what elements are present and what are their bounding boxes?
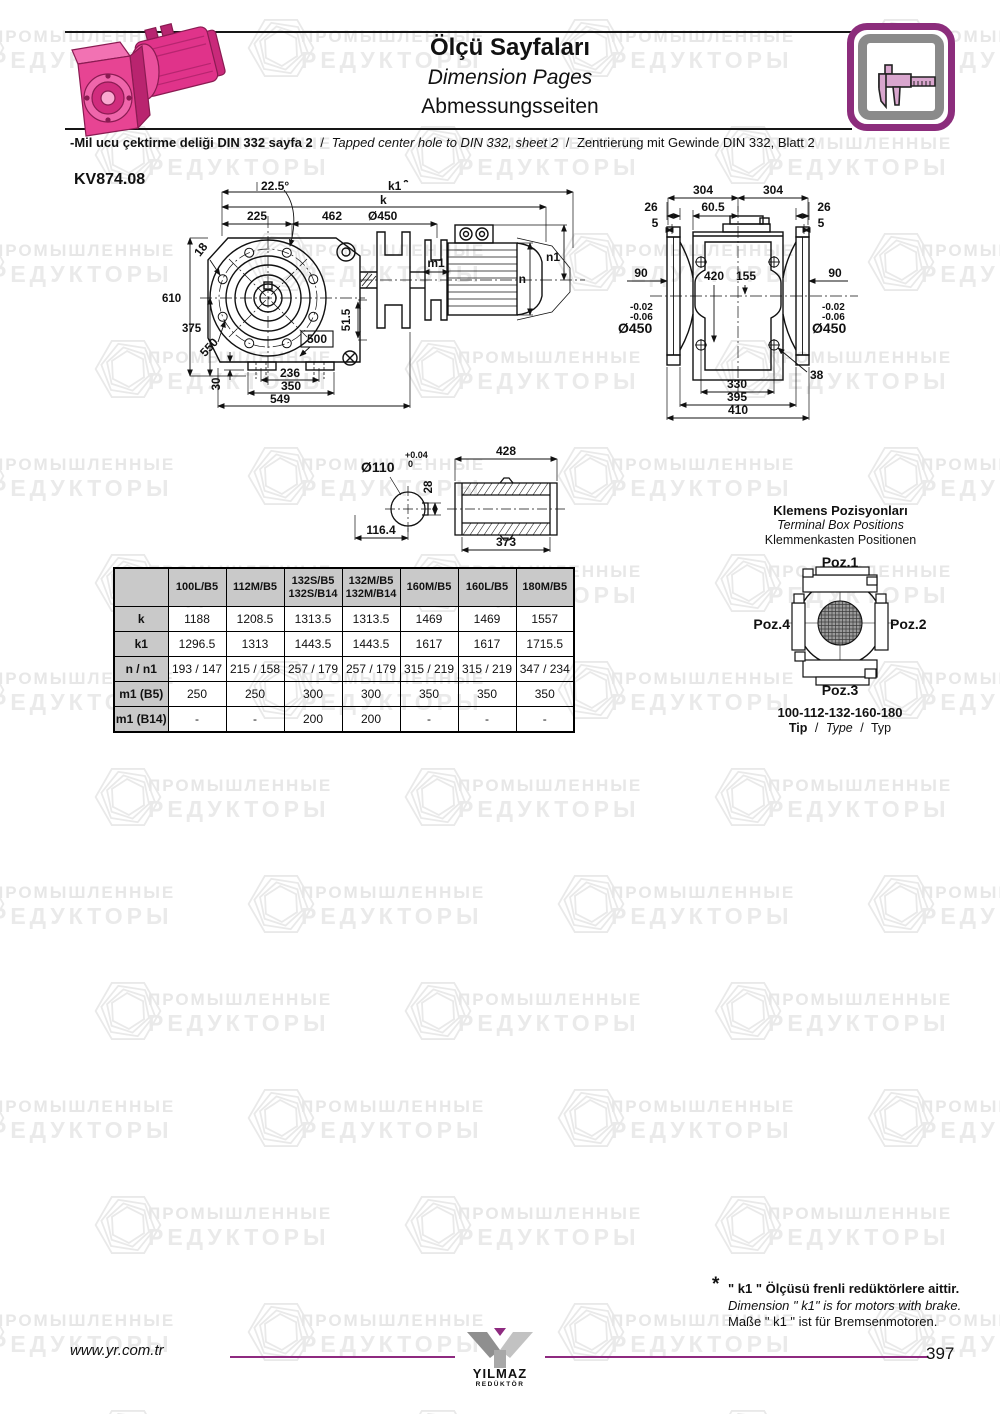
table-cell: 1313 [226, 632, 284, 657]
table-cell: 1469 [458, 607, 516, 632]
side-view-drawing: 304 304 26 60.5 26 5 5 90 90 420 155 -0.… [610, 180, 900, 425]
front-view-drawing: 22.5° k1 * k 225 462 Ø450 610 375 18 550… [160, 180, 640, 430]
logo-name: YILMAZ [473, 1366, 527, 1381]
watermark: ПРОМЫШЛЕННЫЕРЕДУКТОРЫ [0, 440, 175, 517]
hexagon-logo-watermark [92, 975, 164, 1052]
watermark: ПРОМЫШЛЕННЫЕРЕДУКТОРЫ [0, 868, 175, 945]
dim-label-375: 375 [182, 323, 202, 335]
terminal-box-diagram [765, 552, 915, 698]
hexagon-logo-watermark [865, 1082, 937, 1159]
caliper-icon-frame [858, 34, 944, 120]
dim-label-38: 38 [810, 368, 824, 382]
dim-label-18: 18 [191, 240, 210, 259]
dim-label-5-right: 5 [818, 216, 825, 230]
dim-label-90-left: 90 [634, 266, 648, 280]
table-cell: 1557 [516, 607, 574, 632]
table-cell: 300 [342, 682, 400, 707]
watermark: ПРОМЫШЛЕННЫЕРЕДУКТОРЫ [92, 1189, 332, 1266]
type-label-turkish: Tip [789, 721, 808, 735]
watermark: ПРОМЫШЛЕННЫЕРЕДУКТОРЫ [712, 761, 952, 838]
row-label: m1 (B5) [114, 682, 168, 707]
table-cell: 257 / 179 [342, 657, 400, 682]
table-cell: 1313.5 [284, 607, 342, 632]
din-note-german: Zentrierung mit Gewinde DIN 332, Blatt 2 [577, 135, 815, 150]
table-cell: 300 [284, 682, 342, 707]
column-header: 160L/B5 [458, 568, 516, 607]
note-separator: / [566, 135, 570, 150]
dim-label-549: 549 [270, 392, 290, 406]
dim-label-330: 330 [727, 377, 747, 391]
dim-label-angle: 22.5° [261, 180, 289, 193]
caliper-icon [847, 23, 955, 131]
model-number: KV874.08 [74, 171, 145, 189]
footnote-german: Maße " k1 " ist für Bremsenmotoren. [728, 1314, 961, 1331]
table-cell: 1469 [400, 607, 458, 632]
hexagon-logo-watermark [865, 868, 937, 945]
column-header: 132M/B5 132M/B14 [342, 568, 400, 607]
table-cell: 1617 [400, 632, 458, 657]
watermark: ПРОМЫШЛЕННЫЕРЕДУКТОРЫ [712, 975, 952, 1052]
table-cell: 215 / 158 [226, 657, 284, 682]
yilmaz-logo: YILMAZ REDÜKTÖR [455, 1328, 545, 1386]
hexagon-logo-watermark [555, 1082, 627, 1159]
table-cell: - [458, 707, 516, 732]
dim-label-28: 28 [423, 480, 435, 493]
table-cell: - [400, 707, 458, 732]
dim-label-90-right: 90 [828, 266, 842, 280]
hexagon-logo-watermark [245, 12, 317, 89]
table-row-m1-b5: m1 (B5) 250 250 300 300 350 350 350 [114, 682, 574, 707]
table-cell: - [226, 707, 284, 732]
watermark: ПРОМЫШЛЕННЫЕРЕДУКТОРЫ [0, 226, 175, 303]
footer-rule-right [545, 1356, 928, 1358]
hexagon-logo-watermark [402, 1403, 474, 1414]
table-row-k1: k1 1296.5 1313 1443.5 1443.5 1617 1617 1… [114, 632, 574, 657]
dim-label-410: 410 [728, 403, 748, 417]
table-cell: - [516, 707, 574, 732]
hexagon-logo-watermark [712, 1189, 784, 1266]
website-url: www.yr.com.tr [70, 1342, 164, 1359]
hexagon-logo-watermark [555, 1296, 627, 1373]
page-title-english: Dimension Pages [310, 63, 710, 92]
dim-label-k: k [380, 193, 387, 207]
logo-subtitle: REDÜKTÖR [476, 1379, 525, 1386]
table-cell: 250 [226, 682, 284, 707]
type-separator: / [860, 721, 863, 735]
footnote-turkish: " k1 " Ölçüsü frenli redüktörlere aittir… [728, 1281, 961, 1298]
dim-label-373: 373 [496, 535, 516, 549]
table-cell: 200 [342, 707, 400, 732]
terminal-title-english: Terminal Box Positions [748, 518, 933, 533]
dimension-table: 100L/B5 112M/B5 132S/B5 132S/B14 132M/B5… [113, 567, 575, 733]
watermark: ПРОМЫШЛЕННЫЕРЕДУКТОРЫ [402, 975, 642, 1052]
catalog-page: ПРОМЫШЛЕННЫЕРЕДУКТОРЫПРОМЫШЛЕННЫЕРЕДУКТО… [0, 0, 1000, 1414]
dim-label-225: 225 [247, 209, 267, 223]
note-separator: / [320, 135, 324, 150]
dim-label-350: 350 [281, 379, 301, 393]
terminal-title-turkish: Klemens Pozisyonları [748, 503, 933, 518]
watermark: ПРОМЫШЛЕННЫЕРЕДУКТОРЫ [402, 1403, 642, 1414]
dim-label-304-right: 304 [763, 183, 783, 197]
dim-label-304-left: 304 [693, 183, 713, 197]
hollow-shaft-detail: Ø110 +0.04 0 28 116.4 428 373 [335, 445, 615, 560]
watermark: ПРОМЫШЛЕННЫЕРЕДУКТОРЫ [245, 1296, 485, 1373]
hexagon-logo-watermark [402, 1189, 474, 1266]
table-cell: 1617 [458, 632, 516, 657]
hexagon-logo-watermark [402, 761, 474, 838]
watermark: ПРОМЫШЛЕННЫЕРЕДУКТОРЫ [245, 1082, 485, 1159]
hexagon-logo-watermark [0, 440, 7, 517]
dim-label-dia450-left: Ø450 [618, 320, 652, 336]
k1-star: * [403, 180, 409, 191]
dim-label-dia450-right: Ø450 [812, 320, 846, 336]
dim-label-m1: m1 [427, 256, 445, 270]
watermark: ПРОМЫШЛЕННЫЕРЕДУКТОРЫ [92, 975, 332, 1052]
table-cell: 315 / 219 [458, 657, 516, 682]
hexagon-logo-watermark [402, 975, 474, 1052]
table-cell: 257 / 179 [284, 657, 342, 682]
dim-label-155: 155 [736, 269, 756, 283]
table-cell: 315 / 219 [400, 657, 458, 682]
row-label: k1 [114, 632, 168, 657]
footer-rule-left [230, 1356, 455, 1358]
hexagon-logo-watermark [712, 975, 784, 1052]
dim-label-395: 395 [727, 390, 747, 404]
page-title-german: Abmessungsseiten [310, 92, 710, 121]
din-note-english: Tapped center hole to DIN 332, sheet 2 [332, 135, 558, 150]
table-cell: 350 [458, 682, 516, 707]
dim-label-26-right: 26 [817, 200, 831, 214]
dim-label-428: 428 [496, 445, 516, 458]
watermark: ПРОМЫШЛЕННЫЕРЕДУКТОРЫ [555, 868, 795, 945]
dim-label-k1: k1 [388, 180, 402, 193]
table-cell: 1188 [168, 607, 226, 632]
dim-label-n: n [519, 272, 526, 286]
table-row-n-n1: n / n1 193 / 147 215 / 158 257 / 179 257… [114, 657, 574, 682]
caliper-glyph [869, 45, 945, 121]
row-label: n / n1 [114, 657, 168, 682]
watermark: ПРОМЫШЛЕННЫЕРЕДУКТОРЫ [0, 1082, 175, 1159]
row-label: k [114, 607, 168, 632]
column-header: 100L/B5 [168, 568, 226, 607]
dim-label-236: 236 [280, 366, 300, 380]
hexagon-logo-watermark [245, 1082, 317, 1159]
table-row-k: k 1188 1208.5 1313.5 1313.5 1469 1469 15… [114, 607, 574, 632]
table-corner-cell [114, 568, 168, 607]
watermark: ПРОМЫШЛЕННЫЕРЕДУКТОРЫ [402, 1189, 642, 1266]
watermark: ПРОМЫШЛЕННЫЕРЕДУКТОРЫ [712, 1189, 952, 1266]
terminal-title-german: Klemmenkasten Positionen [748, 533, 933, 548]
type-label-english: Type [826, 721, 853, 735]
column-header: 180M/B5 [516, 568, 574, 607]
type-separator: / [815, 721, 818, 735]
hexagon-logo-watermark [712, 761, 784, 838]
hexagon-logo-watermark [92, 1403, 164, 1414]
watermark: ПРОМЫШЛЕННЫЕРЕДУКТОРЫ [402, 761, 642, 838]
watermark: ПРОМЫШЛЕННЫЕРЕДУКТОРЫ [0, 1296, 175, 1373]
column-header: 112M/B5 [226, 568, 284, 607]
watermark: ПРОМЫШЛЕННЫЕРЕДУКТОРЫ [92, 761, 332, 838]
hexagon-logo-watermark [555, 868, 627, 945]
footnote: " k1 " Ölçüsü frenli redüktörlere aittir… [728, 1281, 961, 1331]
dim-label-500: 500 [307, 332, 327, 346]
table-cell: - [168, 707, 226, 732]
dim-label-116-4: 116.4 [366, 523, 396, 537]
watermark: ПРОМЫШЛЕННЫЕРЕДУКТОРЫ [865, 1082, 1000, 1159]
hexagon-logo-watermark [92, 1189, 164, 1266]
dim-label-dia450: Ø450 [368, 209, 398, 223]
dim-label-n1: n1 [546, 250, 560, 264]
dim-label-dia110: Ø110 [361, 459, 395, 475]
hexagon-logo-watermark [0, 226, 7, 303]
page-number: 397 [926, 1344, 954, 1364]
dim-label-610: 610 [162, 293, 181, 305]
page-title-turkish: Ölçü Sayfaları [310, 33, 710, 63]
page-title-block: Ölçü Sayfaları Dimension Pages Abmessung… [310, 33, 710, 121]
hexagon-logo-watermark [245, 1296, 317, 1373]
hexagon-logo-watermark [0, 868, 7, 945]
footnote-asterisk: * [712, 1274, 719, 1296]
type-label-german: Typ [871, 721, 891, 735]
footnote-english: Dimension " k1" is for motors with brake… [728, 1298, 961, 1315]
hexagon-logo-watermark [0, 1082, 7, 1159]
table-cell: 1715.5 [516, 632, 574, 657]
hexagon-logo-watermark [0, 1296, 7, 1373]
terminal-sizes: 100-112-132-160-180 [755, 705, 925, 720]
dim-label-420: 420 [704, 269, 724, 283]
dim-label-5-left: 5 [652, 216, 659, 230]
dim-label-60-5: 60.5 [701, 200, 725, 214]
watermark: ПРОМЫШЛЕННЫЕРЕДУКТОРЫ [555, 1082, 795, 1159]
row-label: m1 (B14) [114, 707, 168, 732]
hexagon-logo-watermark [245, 440, 317, 517]
table-cell: 250 [168, 682, 226, 707]
hexagon-logo-watermark [0, 12, 7, 89]
hexagon-logo-watermark [0, 654, 7, 731]
dim-label-51-5: 51.5 [341, 308, 353, 331]
column-header: 160M/B5 [400, 568, 458, 607]
table-cell: 1313.5 [342, 607, 400, 632]
table-cell: 193 / 147 [168, 657, 226, 682]
watermark: ПРОМЫШЛЕННЫЕРЕДУКТОРЫ [712, 1403, 952, 1414]
table-cell: 1443.5 [342, 632, 400, 657]
gearmotor-photo [60, 12, 245, 144]
table-cell: 1443.5 [284, 632, 342, 657]
hexagon-logo-watermark [712, 1403, 784, 1414]
hexagon-logo-watermark [245, 868, 317, 945]
dim-label-26-left: 26 [644, 200, 658, 214]
table-cell: 350 [516, 682, 574, 707]
table-cell: 1208.5 [226, 607, 284, 632]
column-header: 132S/B5 132S/B14 [284, 568, 342, 607]
hexagon-logo-watermark [92, 333, 164, 410]
table-row-m1-b14: m1 (B14) - - 200 200 - - - [114, 707, 574, 732]
din-note-turkish: -Mil ucu çektirme deliği DIN 332 sayfa 2 [70, 135, 313, 150]
terminal-box-titles: Klemens Pozisyonları Terminal Box Positi… [748, 503, 933, 548]
hexagon-logo-watermark [92, 761, 164, 838]
tolerance-zero: 0 [408, 459, 413, 469]
watermark: ПРОМЫШЛЕННЫЕРЕДУКТОРЫ [92, 1403, 332, 1414]
table-header-row: 100L/B5 112M/B5 132S/B5 132S/B14 132M/B5… [114, 568, 574, 607]
table-cell: 1296.5 [168, 632, 226, 657]
table-cell: 200 [284, 707, 342, 732]
watermark: ПРОМЫШЛЕННЫЕРЕДУКТОРЫ [245, 868, 485, 945]
table-cell: 347 / 234 [516, 657, 574, 682]
table-cell: 350 [400, 682, 458, 707]
watermark: ПРОМЫШЛЕННЫЕРЕДУКТОРЫ [865, 868, 1000, 945]
terminal-type-line: Tip / Type / Typ [755, 721, 925, 735]
din-note: -Mil ucu çektirme deliği DIN 332 sayfa 2… [70, 135, 815, 150]
dim-label-462: 462 [322, 209, 342, 223]
dim-label-30: 30 [211, 378, 223, 391]
